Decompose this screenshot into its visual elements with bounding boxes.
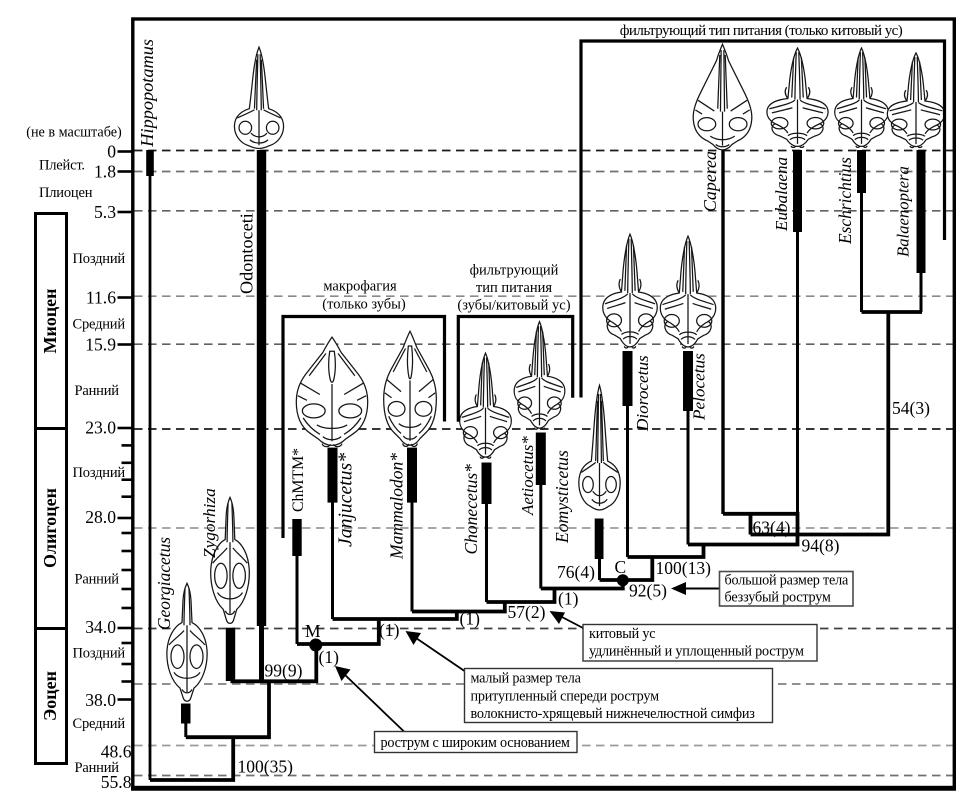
svg-text:Поздний: Поздний — [73, 645, 126, 661]
svg-text:притупленный спереди рострум: притупленный спереди рострум — [471, 689, 660, 705]
svg-text:15.9: 15.9 — [85, 335, 116, 355]
svg-text:34.0: 34.0 — [85, 617, 116, 637]
svg-text:5.3: 5.3 — [94, 202, 116, 222]
svg-text:малый размер тела: малый размер тела — [471, 671, 582, 687]
svg-text:48.6: 48.6 — [101, 742, 132, 762]
svg-text:(1): (1) — [319, 647, 340, 667]
svg-text:макрофагия: макрофагия — [323, 279, 397, 295]
svg-text:28.0: 28.0 — [85, 507, 116, 527]
svg-text:Pelocetus: Pelocetus — [690, 353, 709, 421]
svg-text:M: M — [305, 621, 321, 641]
svg-text:Balaenoptera: Balaenoptera — [894, 166, 913, 257]
svg-text:ChMTM*: ChMTM* — [290, 448, 307, 512]
svg-text:(1): (1) — [379, 620, 400, 640]
svg-text:38.0: 38.0 — [85, 690, 116, 710]
svg-text:фильтрующий тип питания (тольк: фильтрующий тип питания (только китовый … — [620, 23, 903, 39]
svg-text:99(9): 99(9) — [265, 661, 303, 681]
svg-text:100(35): 100(35) — [238, 757, 294, 777]
svg-text:Odontoceti: Odontoceti — [237, 213, 257, 294]
svg-text:Поздний: Поздний — [73, 251, 126, 267]
svg-text:(не в масштабе): (не в масштабе) — [26, 124, 122, 140]
svg-text:Средний: Средний — [73, 317, 126, 333]
svg-text:Ранний: Ранний — [75, 572, 120, 588]
svg-text:94(8): 94(8) — [802, 536, 840, 556]
svg-text:Aetiocetus*: Aetiocetus* — [518, 436, 537, 516]
svg-text:рострум с широким основанием: рострум с широким основанием — [381, 735, 570, 751]
svg-text:Hippopotamus: Hippopotamus — [137, 39, 157, 148]
svg-text:китовый ус: китовый ус — [589, 626, 655, 642]
svg-text:Плейст.: Плейст. — [39, 158, 85, 174]
svg-text:23.0: 23.0 — [85, 417, 116, 437]
svg-text:(1): (1) — [558, 589, 579, 609]
svg-text:92(5): 92(5) — [629, 581, 667, 601]
svg-text:54(3): 54(3) — [892, 398, 930, 418]
svg-text:76(4): 76(4) — [557, 562, 595, 582]
svg-text:тип питания: тип питания — [476, 280, 552, 296]
svg-text:Eomysticetus: Eomysticetus — [552, 450, 572, 544]
svg-text:Eschrichtius: Eschrichtius — [835, 157, 855, 245]
svg-text:удлинённый и уплощенный ростру: удлинённый и уплощенный рострум — [589, 644, 804, 660]
svg-text:Плиоцен: Плиоцен — [39, 185, 93, 201]
svg-text:(только зубы): (только зубы) — [322, 297, 406, 313]
svg-text:Ранний: Ранний — [75, 383, 120, 399]
svg-text:волокнисто-хрящевый нижнечелюс: волокнисто-хрящевый нижнечелюстной симфи… — [471, 706, 756, 722]
svg-text:Diorocetus: Diorocetus — [633, 355, 652, 432]
svg-text:Mammalodon*: Mammalodon* — [387, 453, 407, 560]
svg-text:Zygorhiza: Zygorhiza — [200, 488, 219, 558]
svg-text:Janjucetus*: Janjucetus* — [335, 453, 357, 547]
svg-text:11.6: 11.6 — [86, 288, 116, 308]
svg-text:Средний: Средний — [73, 716, 126, 732]
svg-text:Поздний: Поздний — [73, 465, 126, 481]
svg-text:C: C — [615, 557, 627, 577]
svg-text:(зубы/китовый ус): (зубы/китовый ус) — [457, 298, 570, 314]
svg-text:Caperea: Caperea — [700, 151, 720, 212]
svg-text:Ранний: Ранний — [75, 760, 120, 776]
svg-text:63(4): 63(4) — [753, 518, 791, 538]
svg-text:(1): (1) — [460, 609, 481, 629]
svg-text:Chonecetus*: Chonecetus* — [461, 464, 481, 555]
svg-text:Eubalaena: Eubalaena — [772, 157, 791, 232]
svg-text:Georgiacetus: Georgiacetus — [154, 537, 174, 630]
svg-text:Миоцен: Миоцен — [40, 288, 60, 353]
svg-text:беззубый рострум: беззубый рострум — [725, 590, 831, 606]
svg-text:1.8: 1.8 — [94, 162, 116, 182]
svg-text:фильтрующий: фильтрующий — [470, 263, 559, 279]
svg-text:большой размер тела: большой размер тела — [725, 573, 850, 589]
svg-text:57(2): 57(2) — [508, 602, 546, 622]
svg-text:100(13): 100(13) — [656, 558, 712, 578]
svg-text:Олигоцен: Олигоцен — [40, 488, 60, 568]
svg-text:Эоцен: Эоцен — [40, 671, 60, 721]
svg-text:0: 0 — [107, 142, 116, 162]
